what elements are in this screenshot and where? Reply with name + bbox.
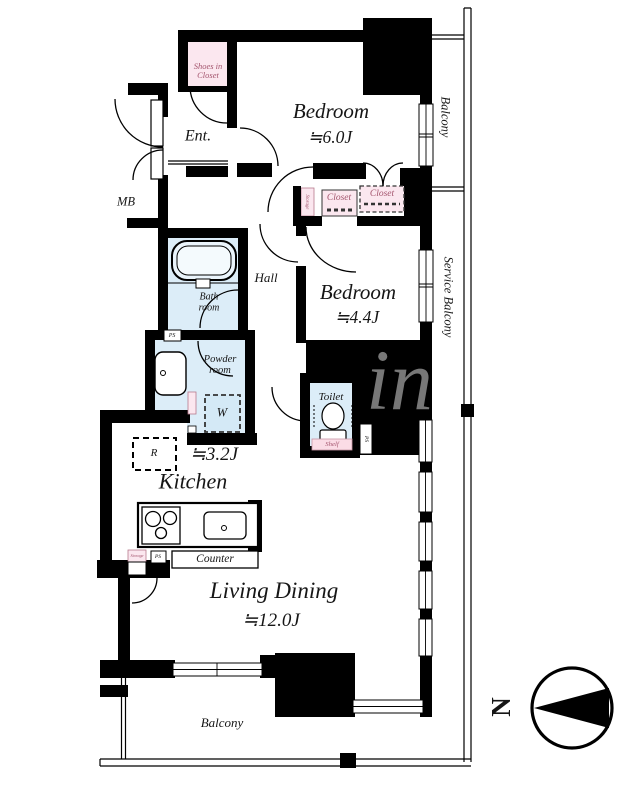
railing-service-divider <box>432 187 464 191</box>
wall-bath-bottom <box>145 330 248 340</box>
balcony-bottom-label: Balcony <box>201 716 244 730</box>
shelf-label: Shelf <box>325 440 339 447</box>
wall-closet-bottom-left <box>293 216 322 226</box>
bath-faucet <box>196 279 210 288</box>
wall-bath-top <box>160 228 248 238</box>
closet-left-label: Closet <box>327 194 351 204</box>
compass <box>532 668 612 748</box>
wall-living-bottom-left <box>100 660 175 678</box>
entrance-label: Ent. <box>185 129 211 146</box>
front-door-leaf-2 <box>151 148 163 179</box>
wall-powder-west <box>145 335 155 412</box>
bathroom-line2: room <box>199 302 220 313</box>
bathroom-label: Bathroom <box>199 293 220 314</box>
wall-powder-hall-divider <box>245 330 255 445</box>
toilet-bowl <box>322 403 344 429</box>
wall-east-mid <box>420 165 432 250</box>
entrance-step-line <box>168 161 228 164</box>
wall-ent-bedroom-divider <box>227 30 237 128</box>
wall-window-sep4 <box>420 609 432 619</box>
shoes-closet-line2: Closet <box>197 70 219 80</box>
bath-ps-label: PS <box>169 333 176 339</box>
bathtub-inner <box>177 246 231 275</box>
closet-bedroom2-door-arc <box>306 227 356 272</box>
vanity-drain <box>161 371 166 376</box>
small-duct <box>188 426 196 433</box>
powder-room-label: Powderroom <box>204 354 237 376</box>
hall-label: Hall <box>254 271 277 285</box>
washer-label: W <box>217 406 227 419</box>
compass-north-label: N <box>487 697 515 717</box>
wall-window-sep1 <box>420 462 432 472</box>
watermark-text: in <box>366 330 433 430</box>
shoes-closet-label: Shoes inCloset <box>194 62 223 80</box>
wall-stub-top-left <box>128 83 168 95</box>
bedroom2-door-arc <box>260 224 298 262</box>
toilet-label: Toilet <box>319 392 344 404</box>
kitchen-storage-label: Storage <box>130 554 143 558</box>
wall-balcony-step <box>100 685 128 697</box>
balcony-side-label: Balcony <box>438 97 451 138</box>
balcony-divider-post <box>461 404 474 417</box>
railing-bottom <box>100 759 471 766</box>
bedroom1-size-label: ≒6.0J <box>308 128 352 146</box>
front-door-leaf-1 <box>151 100 163 146</box>
bedroom1-door-arc <box>240 128 278 166</box>
wall-window-sep3 <box>420 561 432 571</box>
powder-line1: Powder <box>204 354 237 365</box>
closet-right-label: Closet <box>370 190 394 200</box>
railing-balcony-top <box>432 35 464 39</box>
wall-shoes-left <box>178 30 188 92</box>
kitchen-label: Kitchen <box>159 469 227 492</box>
living-dining-label: Living Dining <box>210 579 338 603</box>
wall-bedroom1-bottom-a <box>237 163 272 177</box>
linen-shelf <box>188 392 196 414</box>
fridge-label: R <box>151 448 158 460</box>
floor-plan: Ent. Shoes inCloset Bedroom ≒6.0J Balcon… <box>0 0 622 800</box>
living-dining-size-label: ≒12.0J <box>242 611 300 631</box>
wall-toilet-left <box>300 373 310 455</box>
service-balcony-label: Service Balcony <box>441 257 454 338</box>
counter-label: Counter <box>196 553 234 565</box>
wall-shoes-bottom <box>188 86 228 92</box>
wall-kitchen-top-left <box>100 410 190 423</box>
bedroom2-size-label: ≒4.4J <box>335 308 379 326</box>
bathroom-line1: Bath <box>200 292 219 303</box>
powder-line2: room <box>209 365 231 376</box>
railing-right <box>464 8 471 762</box>
wall-kitchen-west <box>100 415 112 578</box>
wall-window-sep2 <box>420 512 432 522</box>
bedroom2-label: Bedroom <box>320 281 396 303</box>
wall-hall-bedroom2 <box>296 266 306 343</box>
living-door-arc <box>132 578 157 603</box>
hall-storage-label: Storage <box>305 195 310 210</box>
wall-bedroom1-bottom-b <box>313 163 366 179</box>
wall-hall-bedroom2-stub <box>296 226 306 236</box>
bedroom1-label: Bedroom <box>293 100 369 122</box>
kitchen-ps-label: PS <box>155 554 161 560</box>
wall-ent-step <box>186 166 228 177</box>
wall-west-mid <box>158 175 168 335</box>
mb-label: MB <box>117 195 135 208</box>
kitchen-size-label: ≒3.2J <box>190 445 238 465</box>
wall-bath-right <box>238 238 248 330</box>
wall-pillar-bottom <box>275 653 355 717</box>
wall-mb-stub <box>127 218 160 228</box>
kitchen-shelf-box <box>128 562 146 575</box>
vanity-sink <box>155 352 186 395</box>
toilet-ps-label: PS <box>363 436 369 442</box>
wall-east-top <box>420 42 432 105</box>
